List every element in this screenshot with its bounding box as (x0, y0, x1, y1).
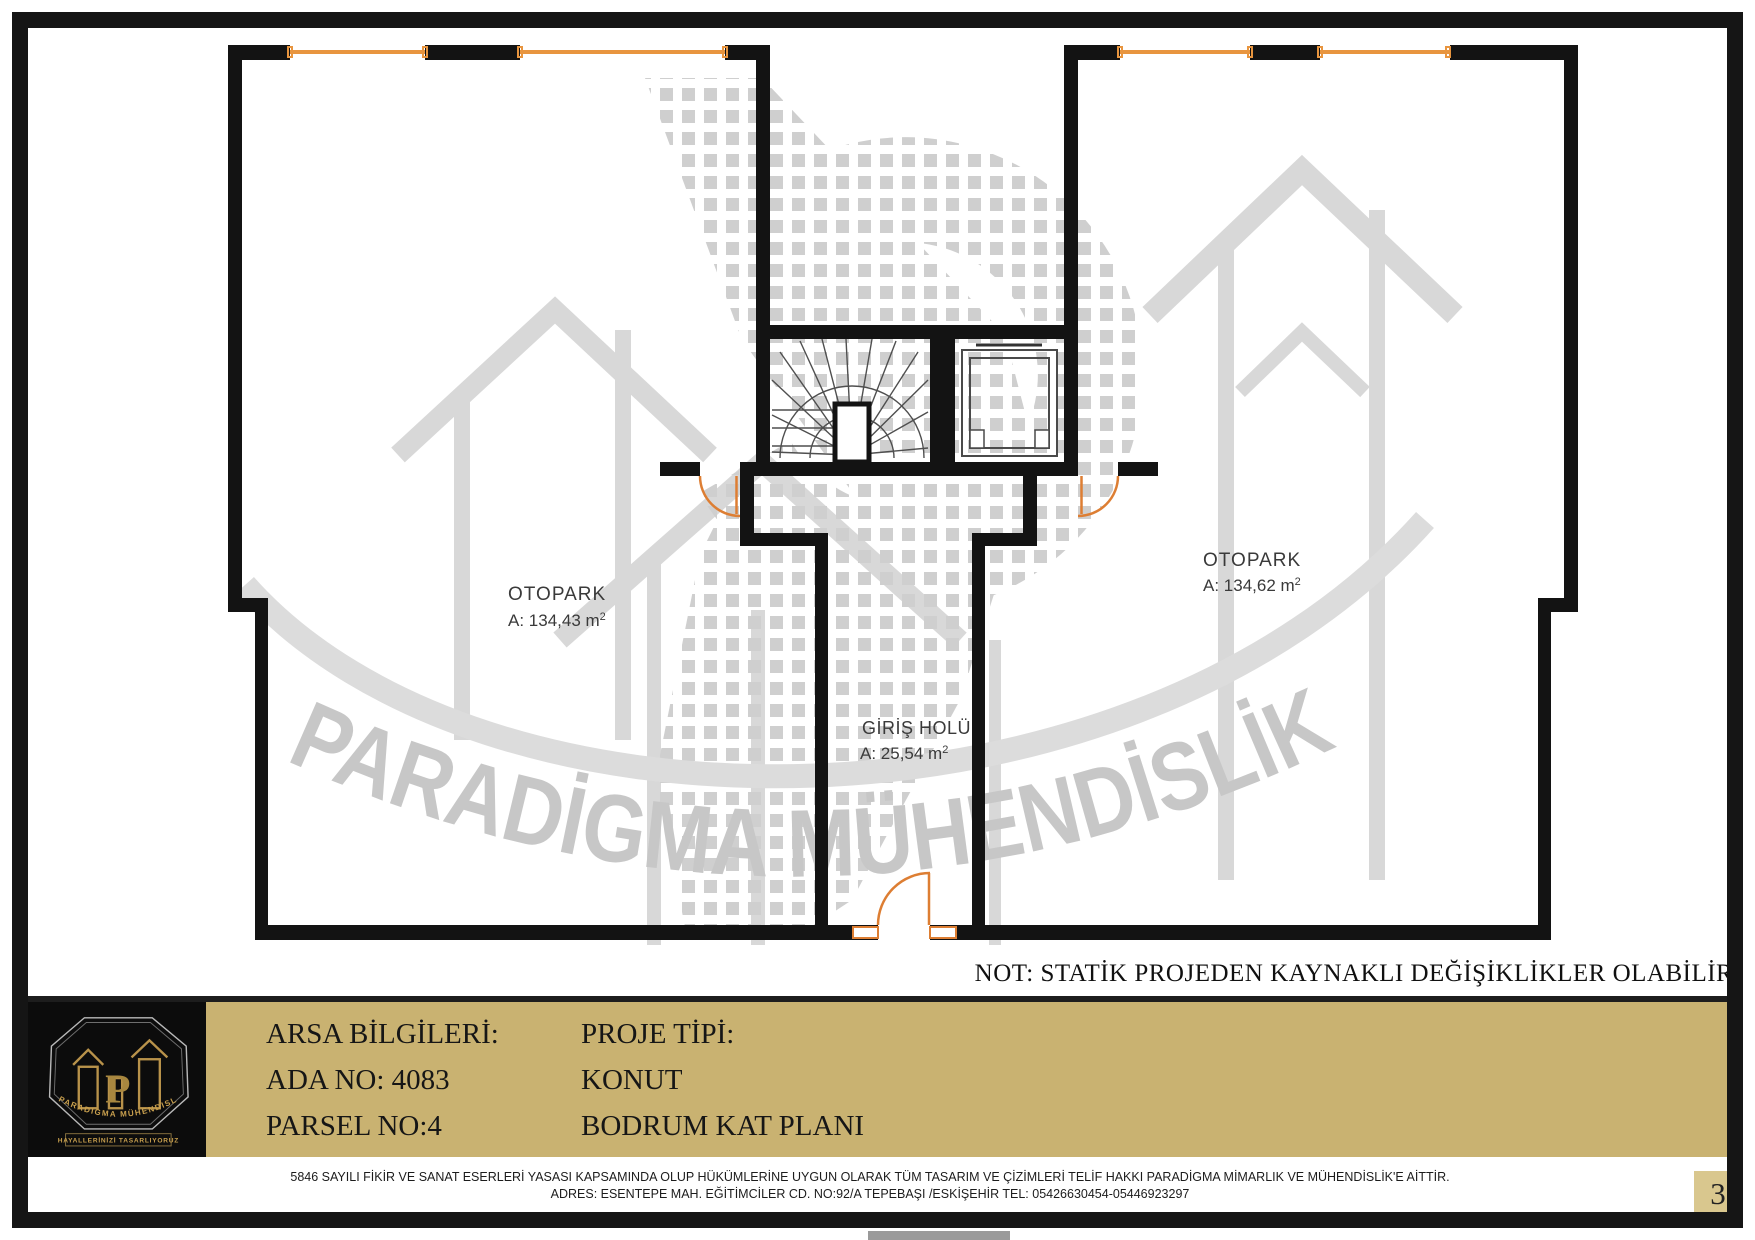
drawing-sheet: PARADİGMA MÜHENDİSLİK (0, 0, 1755, 1240)
svg-text:OTOPARK: OTOPARK (1203, 550, 1301, 571)
proje-tipi-label: PROJE TİPİ: (581, 1011, 864, 1057)
copyright-line: 5846 SAYILI FİKİR VE SANAT ESERLERİ YASA… (150, 1169, 1590, 1186)
svg-text:A: 25,54 m2: A: 25,54 m2 (860, 744, 948, 763)
revision-note: NOT: STATİK PROJEDEN KAYNAKLI DEĞİŞİKLİK… (760, 960, 1740, 988)
svg-text:A: 134,62 m2: A: 134,62 m2 (1203, 576, 1301, 595)
page-number-badge: 3 (1694, 1171, 1742, 1216)
konut-value: KONUT (581, 1057, 864, 1103)
svg-text:A: 134,43 m2: A: 134,43 m2 (508, 611, 606, 630)
parcel-info-column: ARSA BİLGİLERİ: ADA NO: 4083 PARSEL NO:4 (266, 1011, 566, 1149)
project-info-panel: ARSA BİLGİLERİ: ADA NO: 4083 PARSEL NO:4… (206, 1002, 1741, 1157)
parsel-no-value: PARSEL NO:4 (266, 1103, 566, 1149)
bottom-edge-tab (868, 1231, 1010, 1240)
logo-monogram: P (105, 1066, 130, 1112)
project-type-column: PROJE TİPİ: KONUT BODRUM KAT PLANI (581, 1011, 864, 1149)
room-label-otopark-right: OTOPARK A: 134,62 m2 (1203, 550, 1301, 595)
stair-newel (835, 404, 869, 462)
svg-text:GİRİŞ HOLÜ: GİRİŞ HOLÜ (862, 718, 971, 738)
company-logo: P PARADIGMA MÜHENDISLIK HAYALLERİNİZİ TA… (26, 1002, 206, 1157)
plan-title: BODRUM KAT PLANI (581, 1103, 864, 1149)
svg-text:OTOPARK: OTOPARK (508, 584, 606, 605)
ada-no-value: ADA NO: 4083 (266, 1057, 566, 1103)
address-line: ADRES: ESENTEPE MAH. EĞİTİMCİLER CD. NO:… (150, 1186, 1590, 1203)
title-block: P PARADIGMA MÜHENDISLIK HAYALLERİNİZİ TA… (26, 1002, 1741, 1157)
copyright-footer: 5846 SAYILI FİKİR VE SANAT ESERLERİ YASA… (150, 1169, 1590, 1203)
page-number: 3 (1710, 1176, 1726, 1212)
logo-tagline: HAYALLERİNİZİ TASARLIYORUZ (58, 1137, 179, 1145)
watermark: PARADİGMA MÜHENDİSLİK (245, 78, 1455, 1005)
arsa-bilgileri-label: ARSA BİLGİLERİ: (266, 1011, 566, 1057)
